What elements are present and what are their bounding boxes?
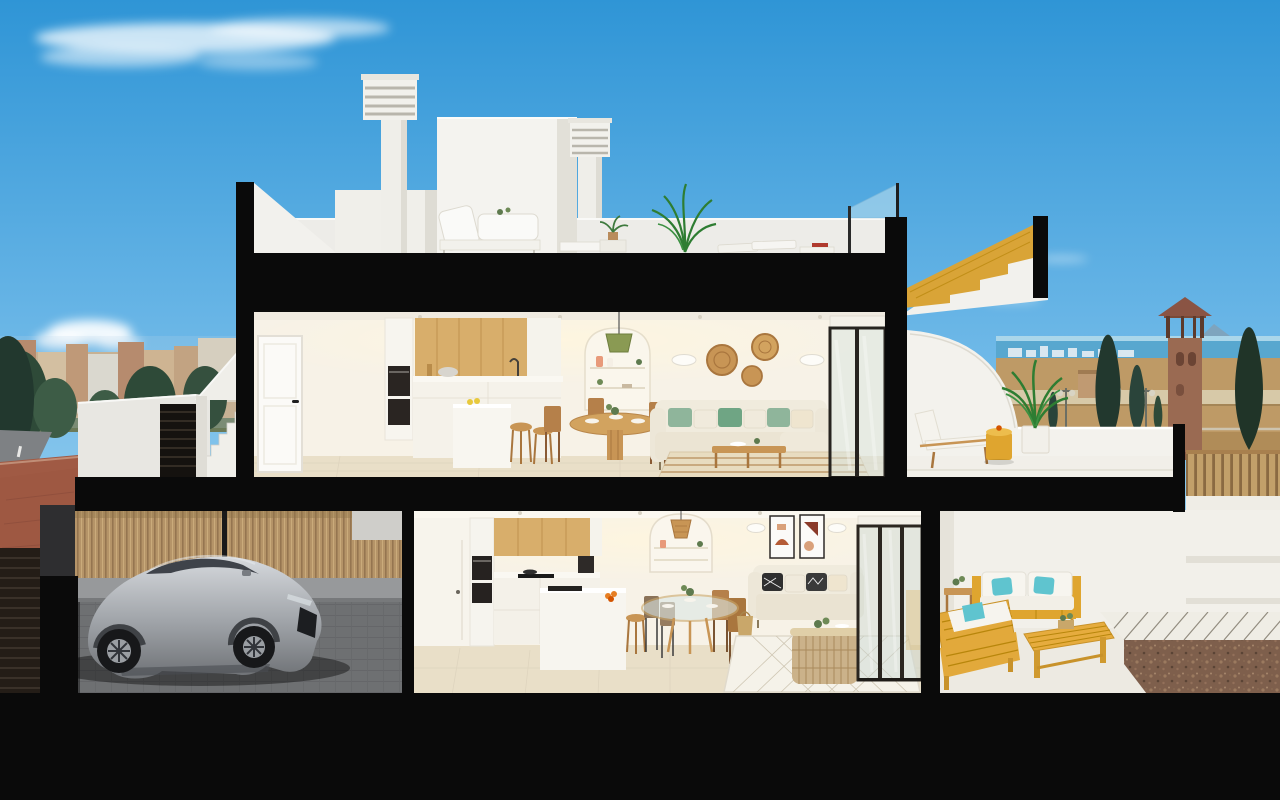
ground-floor-interior: [400, 498, 923, 698]
stair-cut-cap: [1033, 216, 1048, 298]
wall-sconce: [672, 355, 696, 366]
hob: [518, 574, 554, 578]
garage-door: [0, 548, 40, 696]
terrace-cut-jamb: [1173, 424, 1185, 512]
garage-cut-jamb: [402, 508, 414, 698]
sliding-door-ground: [858, 516, 922, 681]
kitchen-peninsula: [453, 398, 511, 468]
ground-sofa: [748, 565, 864, 628]
double-oven: [388, 366, 410, 396]
coffee-machine: [578, 556, 594, 573]
cutaway-rendering: [0, 0, 1280, 800]
upper-floor-interior: [240, 295, 885, 480]
garage: [40, 505, 402, 700]
louvered-gate: [160, 404, 196, 478]
rendering-stage: [0, 0, 1280, 800]
left-cut-wall: [236, 182, 254, 482]
sliding-door-upper: [830, 316, 885, 479]
roof-slab: [250, 253, 907, 312]
car-mirror: [242, 570, 251, 576]
car-wheel-rear: [97, 629, 141, 673]
wall-sconce: [747, 524, 765, 533]
wall-sconce: [828, 524, 846, 533]
side-table-yellow: [984, 425, 1014, 465]
green-cushion: [668, 408, 692, 427]
foundation-slab: [0, 693, 1280, 800]
floor-slab: [75, 477, 1185, 511]
entrance-door: [258, 336, 302, 472]
car-wheel-front: [233, 626, 275, 668]
teal-pillow: [991, 577, 1013, 596]
patio-cut-jamb: [921, 508, 940, 698]
wall-sconce: [800, 355, 824, 366]
right-cut-wall-upper: [885, 217, 907, 480]
oven-tower: [472, 556, 492, 580]
timber-fence: [1186, 452, 1280, 498]
